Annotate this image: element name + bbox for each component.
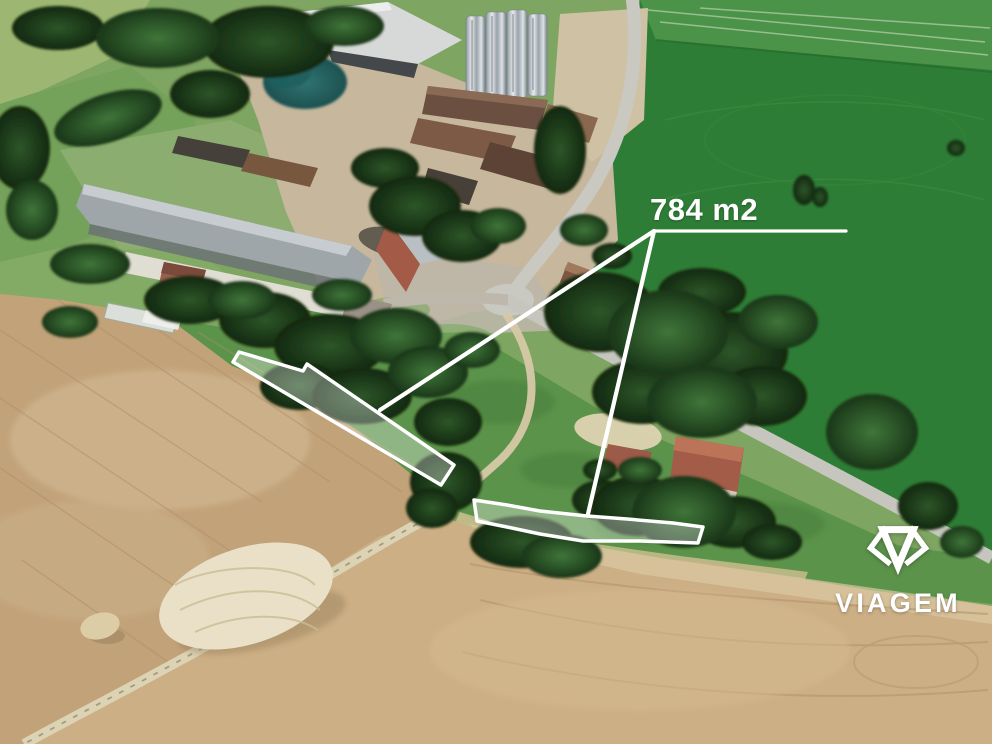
aerial-property-photo: 784 m2 VIAGEM xyxy=(0,0,992,744)
diamond-gem-icon xyxy=(866,524,930,580)
aerial-photo xyxy=(0,0,992,744)
viagem-logo: VIAGEM xyxy=(812,524,984,617)
area-label: 784 m2 xyxy=(650,194,758,225)
logo-text: VIAGEM xyxy=(812,590,984,617)
